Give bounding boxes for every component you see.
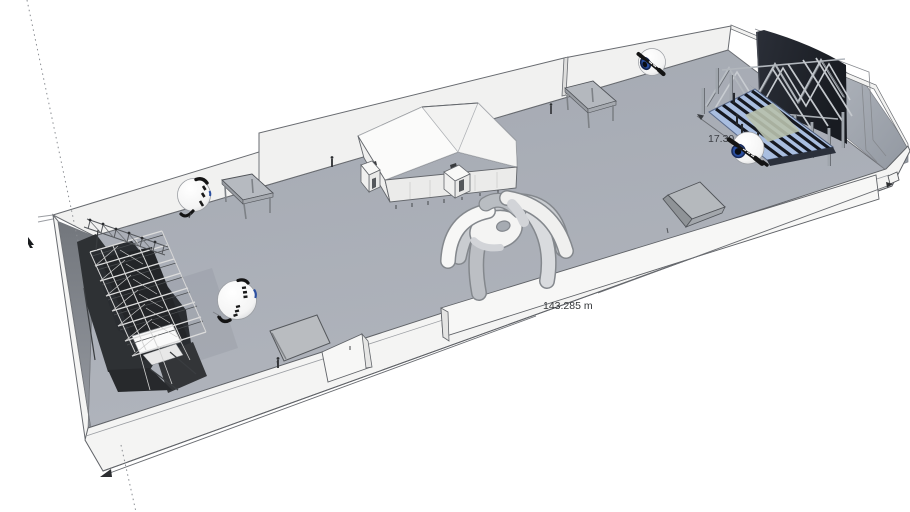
svg-text:143.285 m: 143.285 m (543, 300, 593, 312)
